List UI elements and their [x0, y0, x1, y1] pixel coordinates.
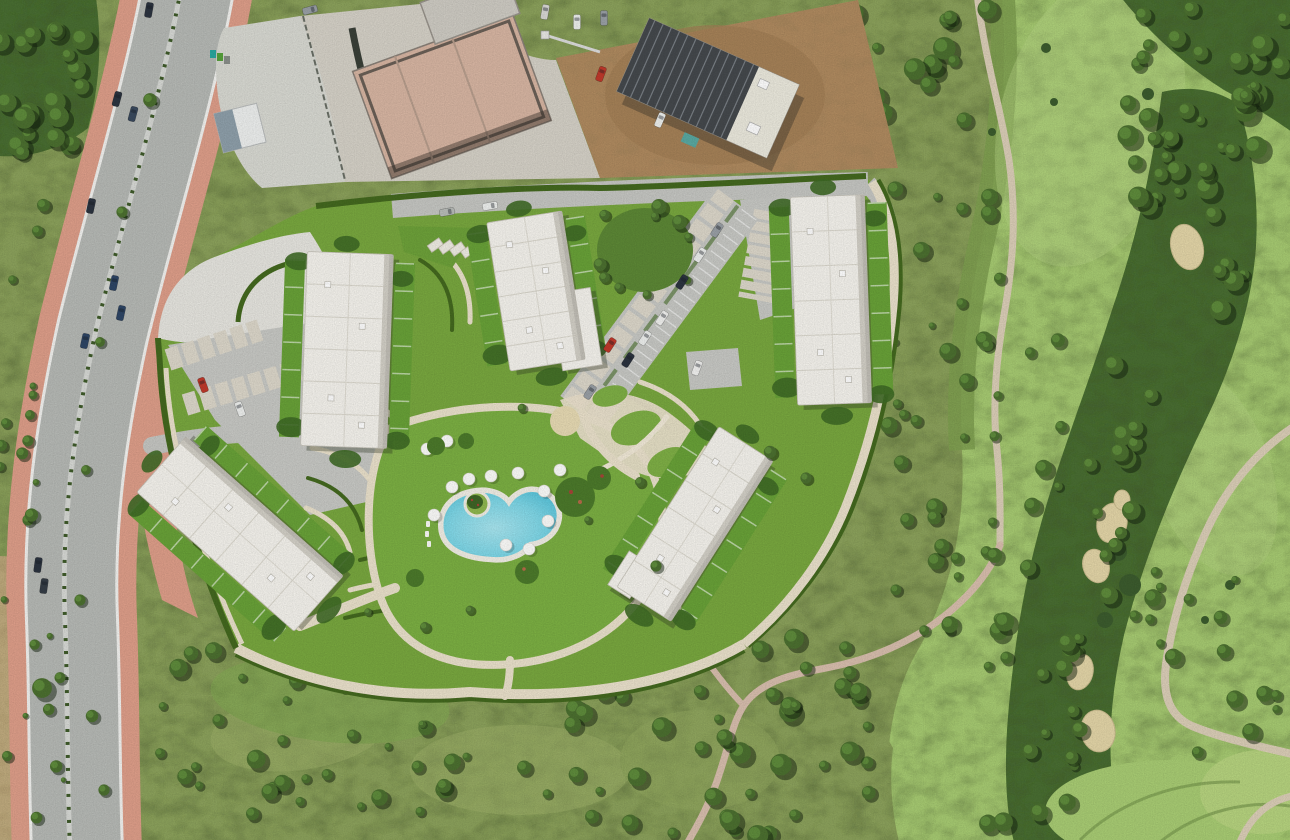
aerial-photo-stage — [0, 0, 1290, 840]
aerial-photo — [0, 0, 1290, 840]
photo-grain — [0, 0, 1290, 840]
